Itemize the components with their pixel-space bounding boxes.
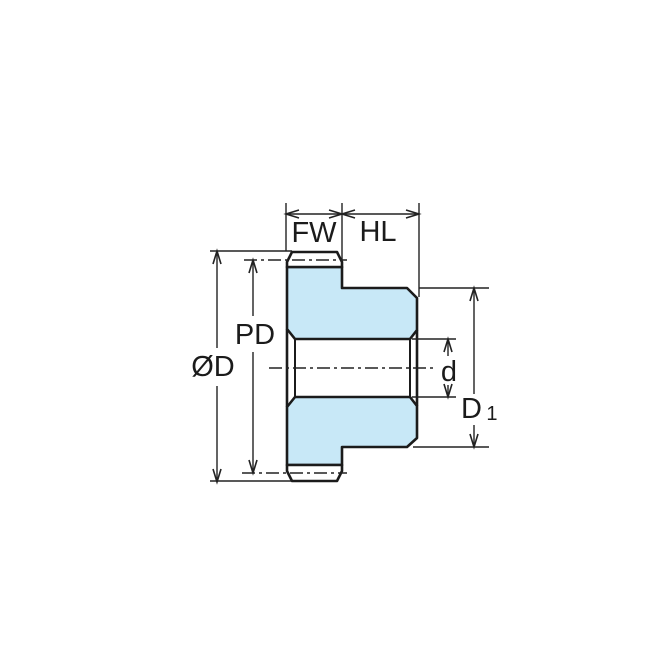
gear-cross-section-drawing: FW HL PD ØD d D 1 [0,0,670,670]
pd-dimension-label: PD [235,319,275,351]
hub-diameter-label-subscript: 1 [486,403,497,425]
fw-dimension-label: FW [291,217,337,249]
bore-dimension-label: d [441,356,457,388]
gear-upper-section [287,267,417,339]
gear-lower-section [287,397,417,465]
hub-diameter-dimension-label: D 1 [461,393,498,425]
od-dimension-label: ØD [191,351,235,383]
gear-dimension-diagram: FW HL PD ØD d D 1 [0,0,670,670]
hub-diameter-label-base: D [461,393,482,425]
hl-dimension-label: HL [359,216,396,248]
